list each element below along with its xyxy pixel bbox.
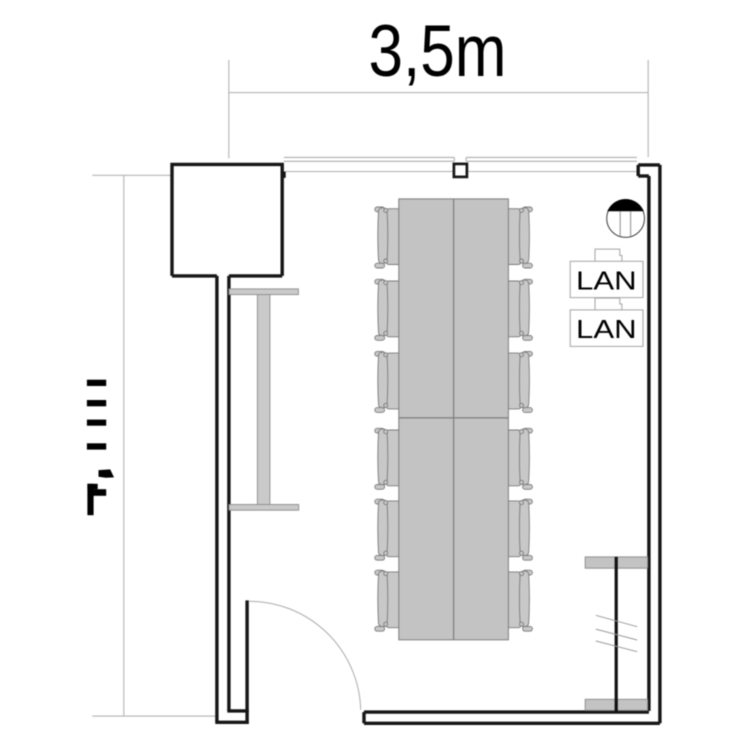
svg-text:LAN: LAN xyxy=(576,314,637,344)
svg-text:LAN: LAN xyxy=(576,266,637,296)
svg-text:3,5m: 3,5m xyxy=(369,10,507,92)
